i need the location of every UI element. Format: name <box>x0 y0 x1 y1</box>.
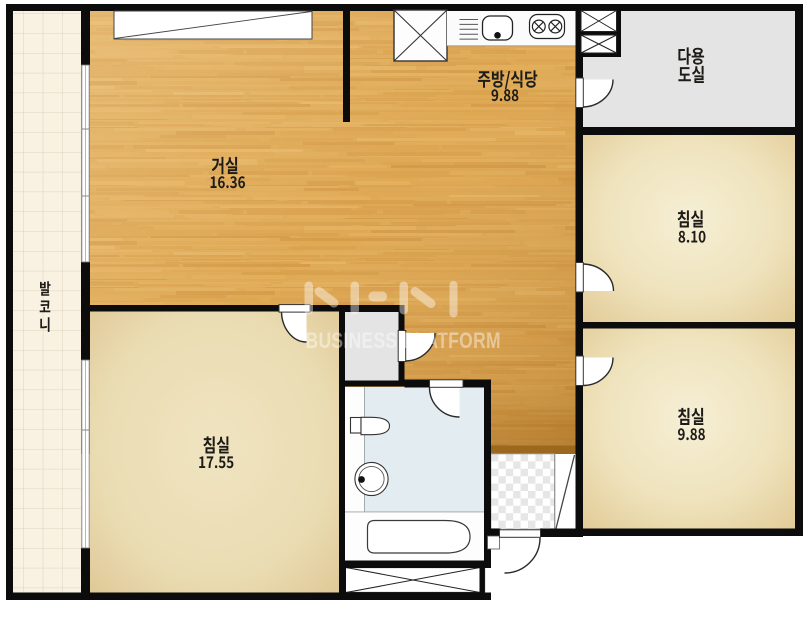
svg-text:BUSINESS PLATFORM: BUSINESS PLATFORM <box>306 329 501 354</box>
